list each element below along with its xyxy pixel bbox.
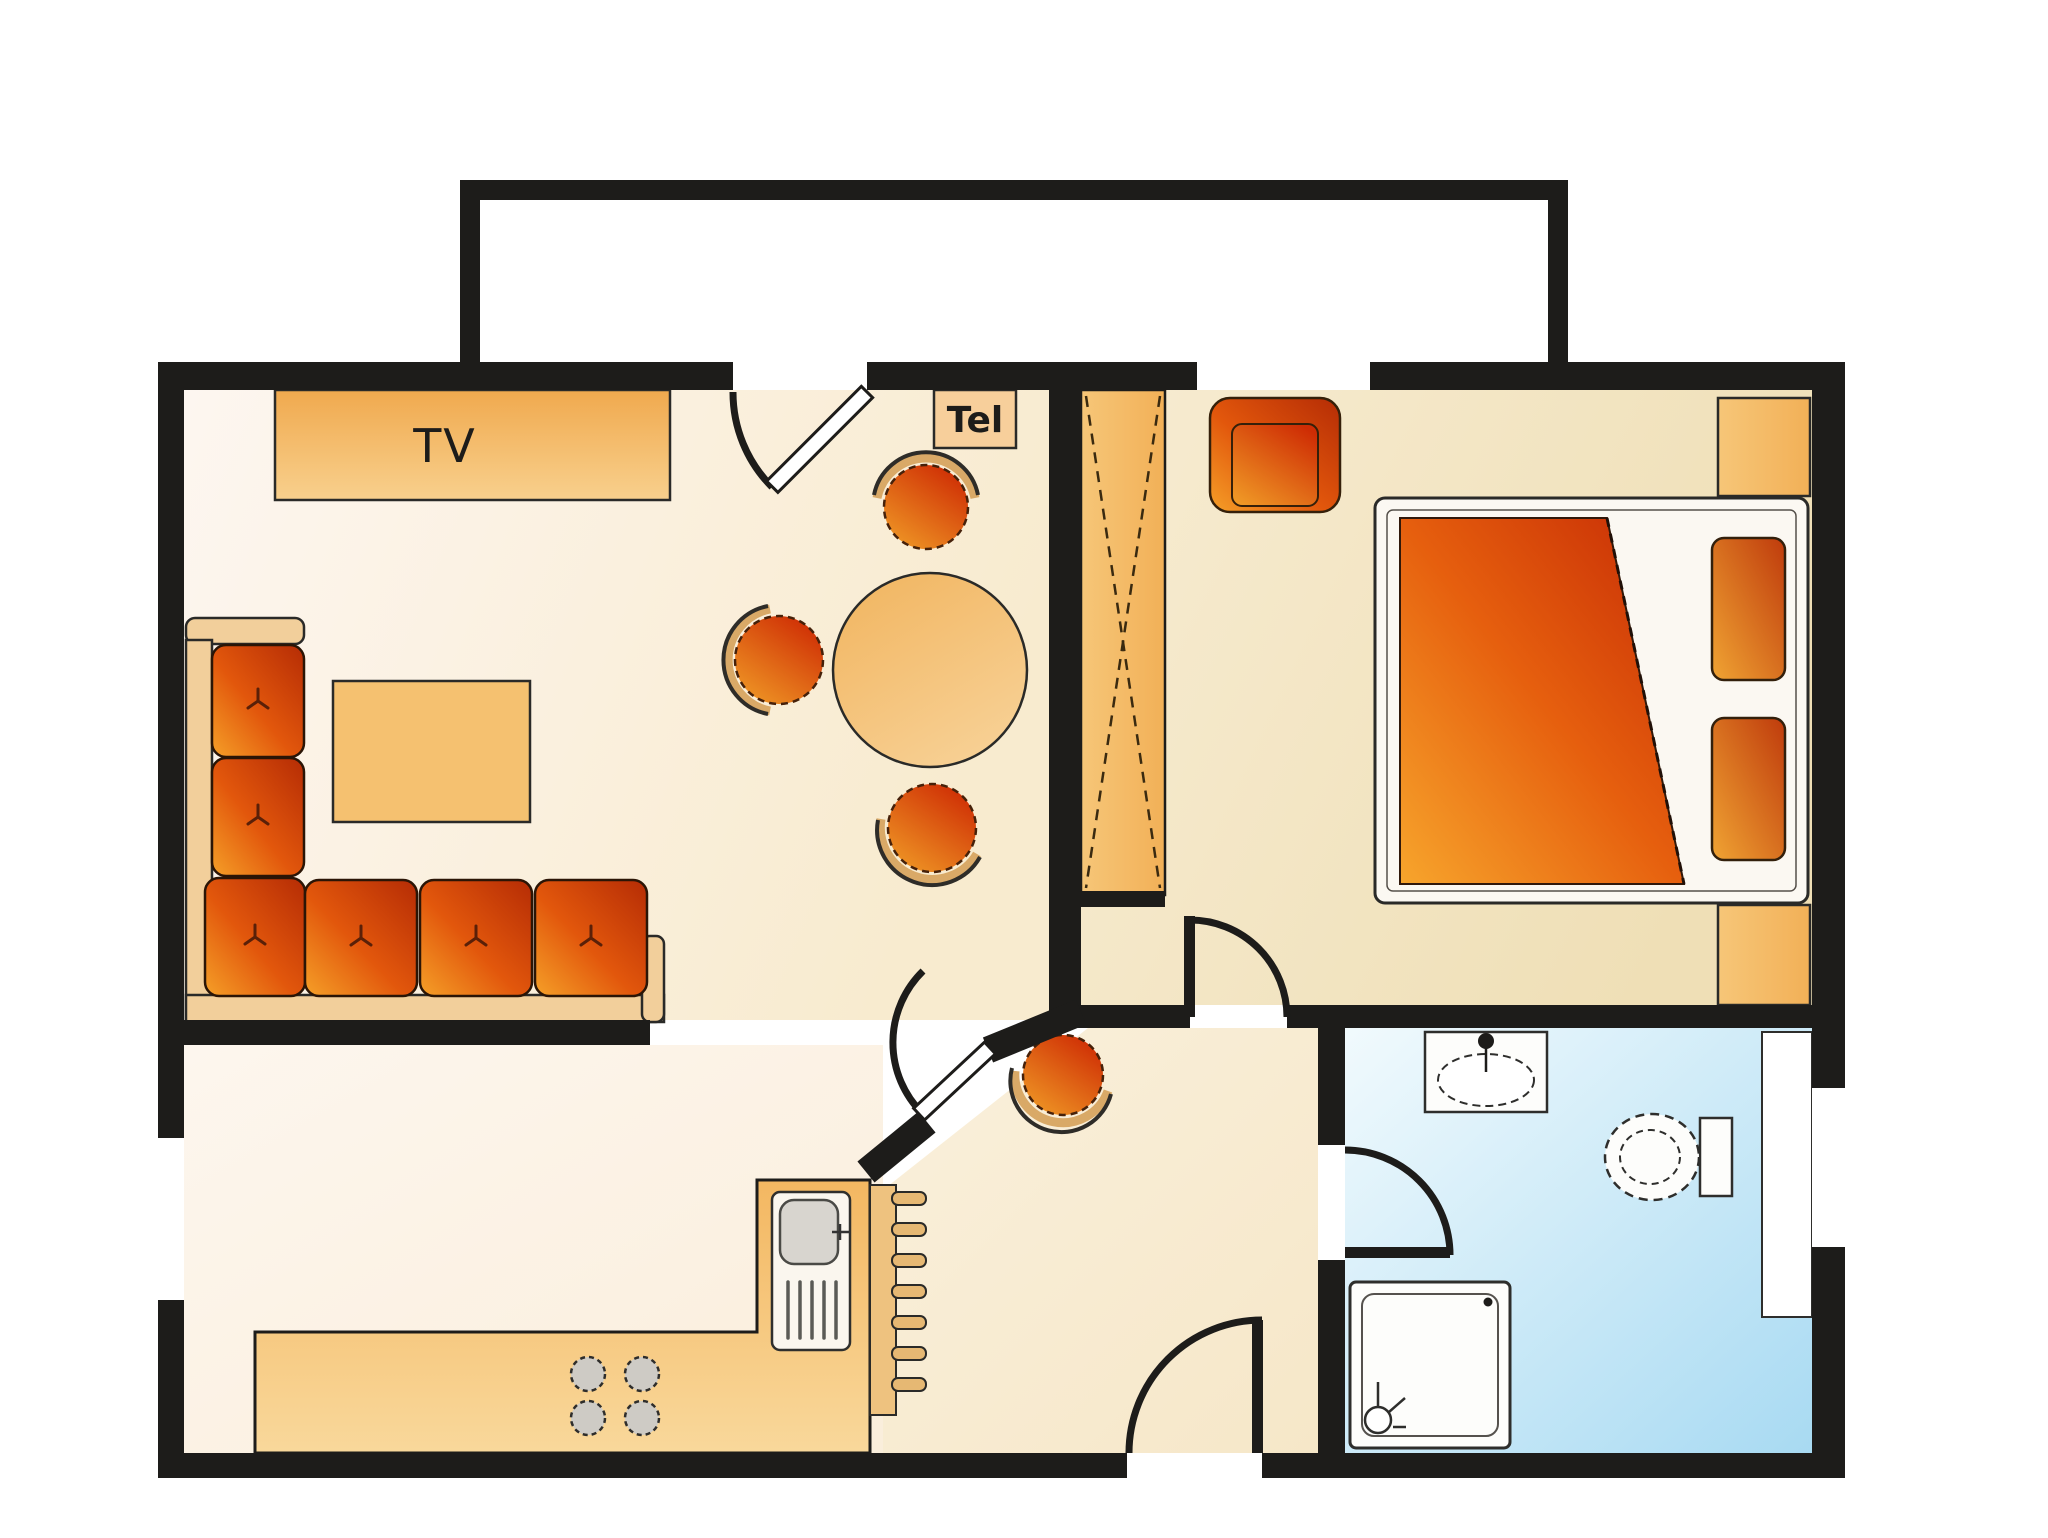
coffee-table bbox=[333, 681, 530, 822]
tv-sideboard: TV bbox=[275, 390, 670, 500]
bed-pillow bbox=[1712, 718, 1785, 860]
balcony-door-gap bbox=[733, 362, 867, 390]
radiator-fin bbox=[892, 1378, 926, 1391]
radiator-fin bbox=[892, 1347, 926, 1360]
radiator-fin bbox=[892, 1316, 926, 1329]
burner bbox=[625, 1401, 659, 1435]
sink-tap-icon bbox=[1478, 1033, 1494, 1049]
tv-label: TV bbox=[412, 419, 477, 473]
exterior-wall-bottom bbox=[1262, 1453, 1845, 1478]
toilet-tank bbox=[1700, 1118, 1732, 1196]
floor-plan-canvas: TV bbox=[0, 0, 2048, 1538]
shower-head-icon bbox=[1365, 1407, 1391, 1433]
radiator-fin bbox=[892, 1192, 926, 1205]
bedroom-door-leaf bbox=[1184, 916, 1195, 1017]
dining-table bbox=[833, 573, 1027, 767]
kitchen-window bbox=[158, 1138, 184, 1300]
nightstand-bottom bbox=[1718, 905, 1810, 1005]
exterior-wall-top bbox=[867, 362, 1197, 390]
exterior-wall-left bbox=[158, 1300, 184, 1478]
bedroom-door-gap bbox=[1190, 1005, 1287, 1028]
radiator-fin bbox=[892, 1285, 926, 1298]
exterior-wall-bottom bbox=[158, 1453, 1127, 1478]
nightstand-top bbox=[1718, 398, 1810, 496]
wall-bedroom-bath bbox=[1287, 1005, 1812, 1028]
wall-living-bedroom bbox=[1049, 390, 1081, 1015]
entrance-door-leaf bbox=[1252, 1320, 1263, 1453]
exterior-wall-top bbox=[1370, 362, 1845, 390]
burner bbox=[571, 1401, 605, 1435]
bedroom-window bbox=[1197, 362, 1370, 390]
exterior-wall-right bbox=[1812, 362, 1845, 1088]
balcony-floor bbox=[480, 200, 1548, 362]
burner bbox=[571, 1357, 605, 1391]
bathroom-window bbox=[1812, 1088, 1845, 1247]
bedroom-armchair bbox=[1210, 398, 1340, 512]
toilet bbox=[1605, 1114, 1732, 1200]
burner bbox=[625, 1357, 659, 1391]
tel-label: Tel bbox=[947, 400, 1004, 441]
double-bed bbox=[1375, 498, 1808, 903]
wall-hall-bath bbox=[1318, 1028, 1345, 1145]
radiator-fin bbox=[892, 1223, 926, 1236]
bathroom-sink bbox=[1425, 1032, 1547, 1112]
floor-plan: TV bbox=[0, 0, 2048, 1538]
wall-living-kitchen bbox=[158, 1020, 650, 1045]
balcony-wall-top bbox=[460, 180, 1568, 200]
sink-basin bbox=[780, 1200, 838, 1264]
towel-radiator bbox=[1762, 1032, 1812, 1317]
balcony-wall-left bbox=[460, 180, 480, 362]
exterior-wall-right bbox=[1812, 1247, 1845, 1478]
diagonal-door-leaf bbox=[914, 1042, 996, 1120]
shower-drain-dot bbox=[1484, 1298, 1493, 1307]
bed-pillow bbox=[1712, 538, 1785, 680]
balcony-wall-right bbox=[1548, 180, 1568, 362]
wall-hall-bath bbox=[1318, 1260, 1345, 1453]
bathroom-door-leaf bbox=[1345, 1247, 1450, 1258]
shower bbox=[1350, 1282, 1510, 1448]
sofa-base-bottom bbox=[186, 995, 664, 1022]
tel-box: Tel bbox=[934, 390, 1016, 448]
exterior-wall-top bbox=[158, 362, 733, 390]
radiator-fin bbox=[892, 1254, 926, 1267]
kitchen-sink bbox=[772, 1192, 850, 1350]
